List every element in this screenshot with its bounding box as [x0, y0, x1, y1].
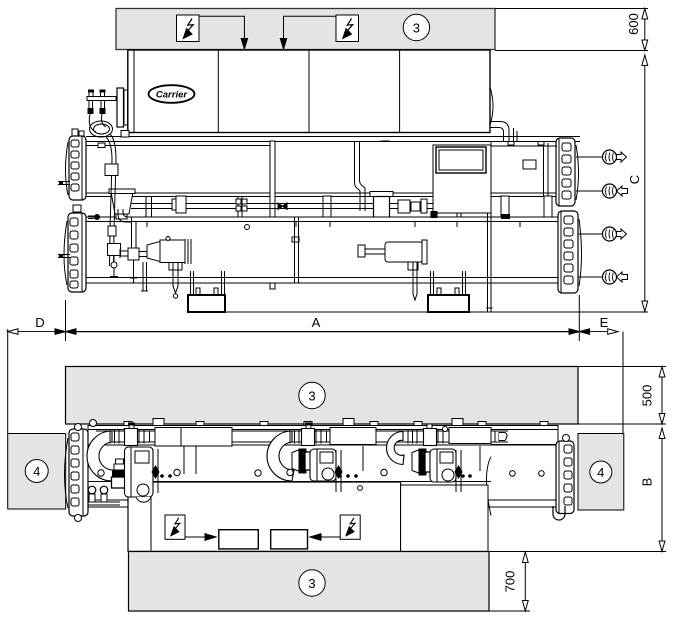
svg-text:E: E — [600, 315, 609, 330]
svg-text:4: 4 — [597, 465, 604, 480]
svg-text:600: 600 — [626, 13, 641, 35]
svg-text:B: B — [640, 478, 655, 487]
svg-text:3: 3 — [308, 576, 315, 591]
svg-text:C: C — [627, 175, 642, 184]
svg-text:Carrier: Carrier — [156, 90, 188, 101]
svg-text:500: 500 — [640, 385, 655, 407]
svg-text:3: 3 — [413, 21, 420, 36]
svg-text:700: 700 — [503, 571, 518, 593]
svg-text:A: A — [312, 315, 321, 330]
svg-text:4: 4 — [33, 464, 40, 479]
svg-text:D: D — [35, 315, 44, 330]
svg-text:3: 3 — [308, 389, 315, 404]
